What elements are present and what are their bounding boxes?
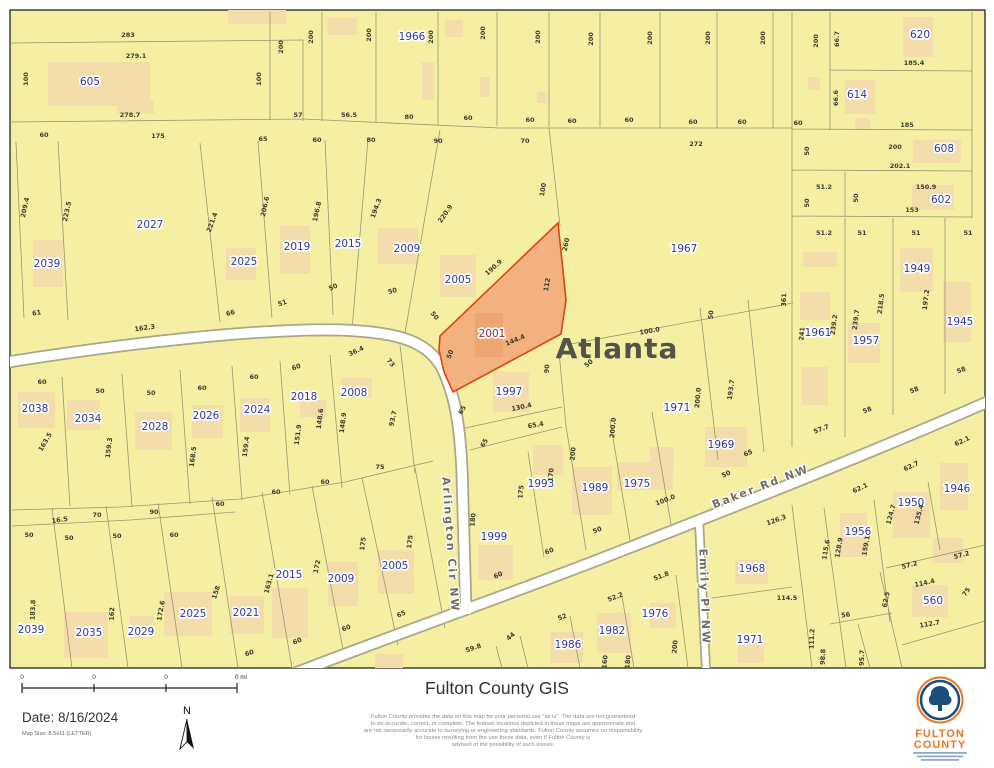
parcel-number-label: 1989 <box>582 482 609 494</box>
parcel-number-label: 2028 <box>142 421 169 433</box>
parcel-number-label: 1999 <box>481 531 508 543</box>
dimension-label: 361 <box>780 293 788 307</box>
parcel-number-label: 1969 <box>708 439 735 451</box>
parcel-number-label: 2005 <box>445 274 472 286</box>
parcel-number-label: 2024 <box>244 404 271 416</box>
dimension-label: 51 <box>857 229 867 237</box>
dimension-label: 61 <box>32 308 43 318</box>
dimension-label: 60 <box>197 384 207 392</box>
parcel-number-label: 1949 <box>904 263 931 275</box>
dimension-label: 200 <box>646 31 654 45</box>
dimension-label: 60 <box>463 114 473 122</box>
dimension-label: 50 <box>112 532 122 540</box>
fulton-county-logo: FULTON COUNTY <box>913 678 967 761</box>
dimension-label: 175 <box>516 484 525 499</box>
dimension-label: 51.2 <box>816 229 832 237</box>
dimension-label: 51 <box>963 229 973 237</box>
dimension-label: 70 <box>92 511 102 519</box>
dimension-label: 200 <box>888 143 902 151</box>
dimension-label: 50 <box>803 146 811 156</box>
parcel-number-label: 2019 <box>284 241 311 253</box>
logo-tagline-lines <box>913 752 967 761</box>
dimension-label: 90 <box>433 137 443 145</box>
parcel-number-label: 1968 <box>739 563 766 575</box>
parcel-number-label: 602 <box>931 194 951 206</box>
map-size-label: Map Size: 8.5x11 (LETTER) <box>22 731 92 737</box>
dimension-label: 50 <box>64 534 74 542</box>
scale-label-0: 0 <box>20 674 24 681</box>
dimension-label: 200 <box>704 31 712 45</box>
dimension-label: 56.5 <box>341 111 358 119</box>
parcel-number-label: 2034 <box>75 413 102 425</box>
parcel-number-label: 614 <box>847 89 867 101</box>
parcel-number-label: 1961 <box>805 327 832 339</box>
parcel-number-label: 2035 <box>76 627 103 639</box>
dimension-label: 200 <box>587 32 595 46</box>
dimension-label: 200 <box>759 31 767 45</box>
parcel-number-label: 2008 <box>341 387 368 399</box>
parcel-number-label: 2027 <box>137 219 164 231</box>
dimension-label: 100 <box>255 72 263 86</box>
dimension-label: 57 <box>293 111 302 119</box>
dimension-label: 60 <box>37 378 47 386</box>
dimension-label: 200 <box>277 40 285 54</box>
dimension-label: 114.5 <box>777 594 798 602</box>
dimension-label: 200 <box>365 28 373 42</box>
dimension-label: 279.1 <box>126 52 147 60</box>
dimension-label: 51.2 <box>816 183 832 191</box>
dimension-label: 60 <box>169 531 179 539</box>
dimension-label: 153 <box>905 206 919 214</box>
parcel-number-label: 2015 <box>276 569 303 581</box>
disclaimer-line-5: advised of the possibility of such losse… <box>452 742 555 748</box>
dimension-label: 100 <box>22 72 30 86</box>
parcel-number-label: 1945 <box>947 316 974 328</box>
parcel-number-label: 2026 <box>193 410 220 422</box>
parcel-number-label: 2025 <box>231 256 258 268</box>
dimension-label: 185 <box>900 121 914 129</box>
dimension-label: 90 <box>149 508 159 516</box>
dimension-label: 50 <box>803 198 811 208</box>
dimension-label: 200 <box>812 34 820 48</box>
dimension-label: 90 <box>543 363 552 373</box>
parcel-number-label: 1946 <box>944 483 971 495</box>
north-arrow-right <box>187 719 194 749</box>
dimension-label: 60 <box>215 500 225 508</box>
dimension-label: 200 <box>534 30 542 44</box>
dimension-label: 66.7 <box>833 31 841 47</box>
parcel-number-label: 1975 <box>624 478 651 490</box>
dimension-label: 175 <box>151 132 165 140</box>
parcel-number-label: 2015 <box>335 238 362 250</box>
scale-label-1: 0 <box>92 674 96 681</box>
dimension-label: 66.6 <box>832 90 840 107</box>
parcel-number-label: 1971 <box>737 634 764 646</box>
dimension-label: 175 <box>358 536 368 551</box>
dimension-label: 51 <box>911 229 921 237</box>
dimension-label: 160 <box>600 654 609 669</box>
parcel-number-label: 2018 <box>291 391 318 403</box>
scale-label-2: 0 <box>164 674 168 681</box>
dimension-label: 111.2 <box>807 628 816 649</box>
dimension-label: 98.8 <box>819 648 828 665</box>
dimension-label: 185.4 <box>904 59 925 67</box>
dimension-label: 183.8 <box>29 599 38 620</box>
city-name-label: Atlanta <box>556 332 679 365</box>
dimension-label: 150.9 <box>916 183 937 191</box>
dimension-label: 200 <box>670 639 679 654</box>
dimension-label: 60 <box>688 118 698 126</box>
dimension-label: 200 <box>568 446 577 461</box>
parcel-number-label: 2021 <box>233 607 260 619</box>
dimension-label: 200 <box>479 26 487 40</box>
dimension-label: 60 <box>525 116 535 124</box>
dimension-label: 200 <box>427 30 435 44</box>
north-arrow: N <box>180 705 194 749</box>
disclaimer-line-4: for losses resulting from the use these … <box>416 735 591 741</box>
dimension-label: 200 <box>307 30 315 44</box>
parcel-number-label: 2039 <box>34 258 61 270</box>
parcel-number-label: 1966 <box>399 31 426 43</box>
dimension-label: 50 <box>707 309 716 319</box>
dimension-label: 95.7 <box>858 650 867 666</box>
dimension-label: 60 <box>567 117 577 125</box>
dimension-label: 50 <box>24 531 34 539</box>
parcel-number-label: 1997 <box>496 386 523 398</box>
parcel-number-label: 608 <box>934 143 954 155</box>
map-canvas: 6051966620614608602202720392025201920152… <box>0 0 994 768</box>
scale-bar <box>22 683 237 693</box>
parcel-number-label: 2009 <box>328 573 355 585</box>
parcel-number-label: 560 <box>923 595 943 607</box>
parcel-number-label: 2005 <box>382 560 409 572</box>
dimension-label: 60 <box>793 119 803 127</box>
disclaimer-line-2: to be accurate, correct, or complete. Th… <box>371 721 635 727</box>
footer: 0 0 0 0 mi N Fulton County GIS Fulton Co… <box>20 674 967 761</box>
north-arrow-left <box>180 719 187 749</box>
parcel-number-label: 620 <box>910 29 930 41</box>
logo-county: COUNTY <box>914 739 966 751</box>
dimension-label: 278.7 <box>120 111 141 119</box>
dimension-label: 60 <box>737 118 747 126</box>
dimension-label: 175 <box>405 534 415 549</box>
parcel-number-label: 1986 <box>555 639 582 651</box>
date-label: Date: 8/16/2024 <box>22 710 119 725</box>
dimension-label: 80 <box>404 113 414 121</box>
parcel-number-label: 1967 <box>671 243 698 255</box>
dimension-label: 60 <box>312 136 322 144</box>
dimension-label: 180 <box>623 654 632 669</box>
parcel-number-label: 2039 <box>18 624 45 636</box>
dimension-label: 75 <box>375 463 385 471</box>
parcel-number-label: 2038 <box>22 403 49 415</box>
dimension-label: 283 <box>121 31 135 39</box>
parcel-number-label: 605 <box>80 76 100 88</box>
dimension-label: 241 <box>797 326 806 341</box>
scale-label-3: 0 mi <box>235 674 247 681</box>
dimension-label: 60 <box>624 116 634 124</box>
dimension-label: 60 <box>249 373 259 381</box>
parcel-number-label: 1976 <box>642 608 669 620</box>
footer-title: Fulton County GIS <box>425 678 569 698</box>
highlighted-parcel-number-label: 2001 <box>479 328 506 340</box>
dimension-label: 50 <box>146 389 156 397</box>
parcel-number-label: 1982 <box>599 625 626 637</box>
dimension-label: 50 <box>95 387 105 395</box>
dimension-label: 56 <box>841 610 852 619</box>
dimension-label: 60 <box>271 488 281 496</box>
parcel-number-label: 2025 <box>180 608 207 620</box>
dimension-label: 180 <box>468 512 477 527</box>
dimension-label: 272 <box>689 140 703 148</box>
dimension-label: 50 <box>852 193 860 203</box>
parcel-number-label: 2009 <box>394 243 421 255</box>
dimension-label: 60 <box>320 478 330 486</box>
dimension-label: 162 <box>108 607 116 621</box>
dimension-label: 170 <box>546 467 555 482</box>
dimension-label: 202.1 <box>890 162 911 170</box>
parcel-number-label: 1971 <box>664 402 691 414</box>
dimension-label: 80 <box>366 136 376 144</box>
dimension-label: 60 <box>39 131 49 139</box>
dimension-label: 65 <box>258 135 268 143</box>
north-label: N <box>183 705 191 717</box>
dimension-label: 70 <box>520 137 530 145</box>
gis-map-export: 6051966620614608602202720392025201920152… <box>0 0 994 768</box>
parcel-number-label: 2029 <box>128 626 155 638</box>
disclaimer-line-3: are not necessarily accurate to surveyin… <box>364 728 642 734</box>
disclaimer-line-1: Fulton County provides the data on this … <box>371 714 635 720</box>
parcel-number-label: 1957 <box>853 335 880 347</box>
